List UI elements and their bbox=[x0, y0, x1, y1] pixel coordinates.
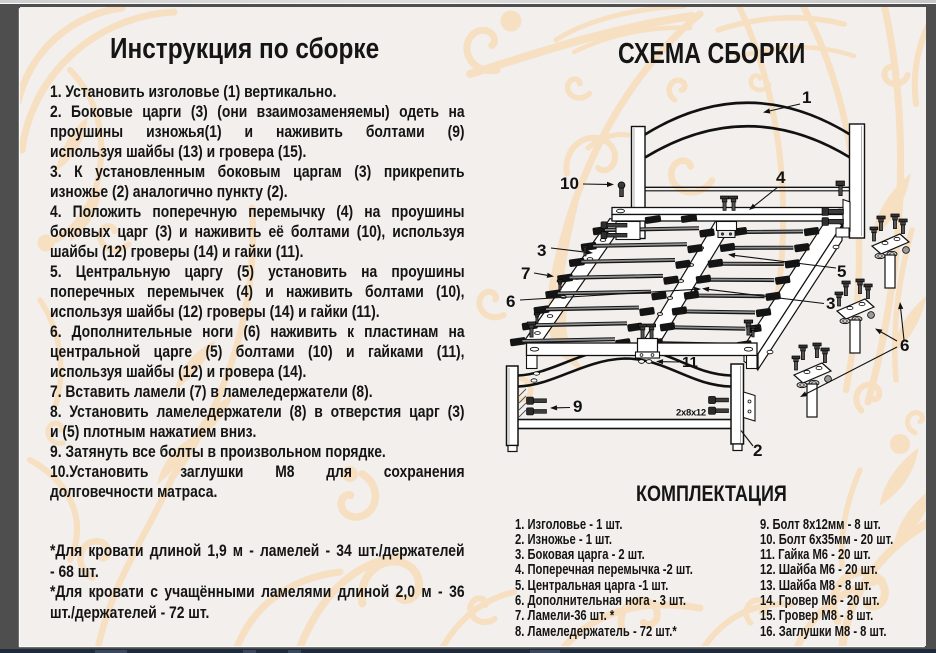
svg-text:11: 11 bbox=[682, 354, 698, 371]
svg-text:9: 9 bbox=[573, 397, 582, 416]
svg-text:2: 2 bbox=[753, 441, 762, 460]
svg-text:2х8х12: 2х8х12 bbox=[676, 408, 706, 419]
svg-text:3: 3 bbox=[537, 241, 546, 260]
svg-text:7: 7 bbox=[521, 264, 530, 283]
svg-text:6: 6 bbox=[900, 336, 909, 355]
svg-text:10: 10 bbox=[560, 174, 579, 193]
svg-text:3: 3 bbox=[826, 294, 835, 313]
svg-text:4: 4 bbox=[776, 168, 786, 187]
svg-text:1: 1 bbox=[802, 88, 811, 107]
svg-text:5: 5 bbox=[837, 262, 846, 281]
svg-text:6: 6 bbox=[506, 292, 515, 311]
